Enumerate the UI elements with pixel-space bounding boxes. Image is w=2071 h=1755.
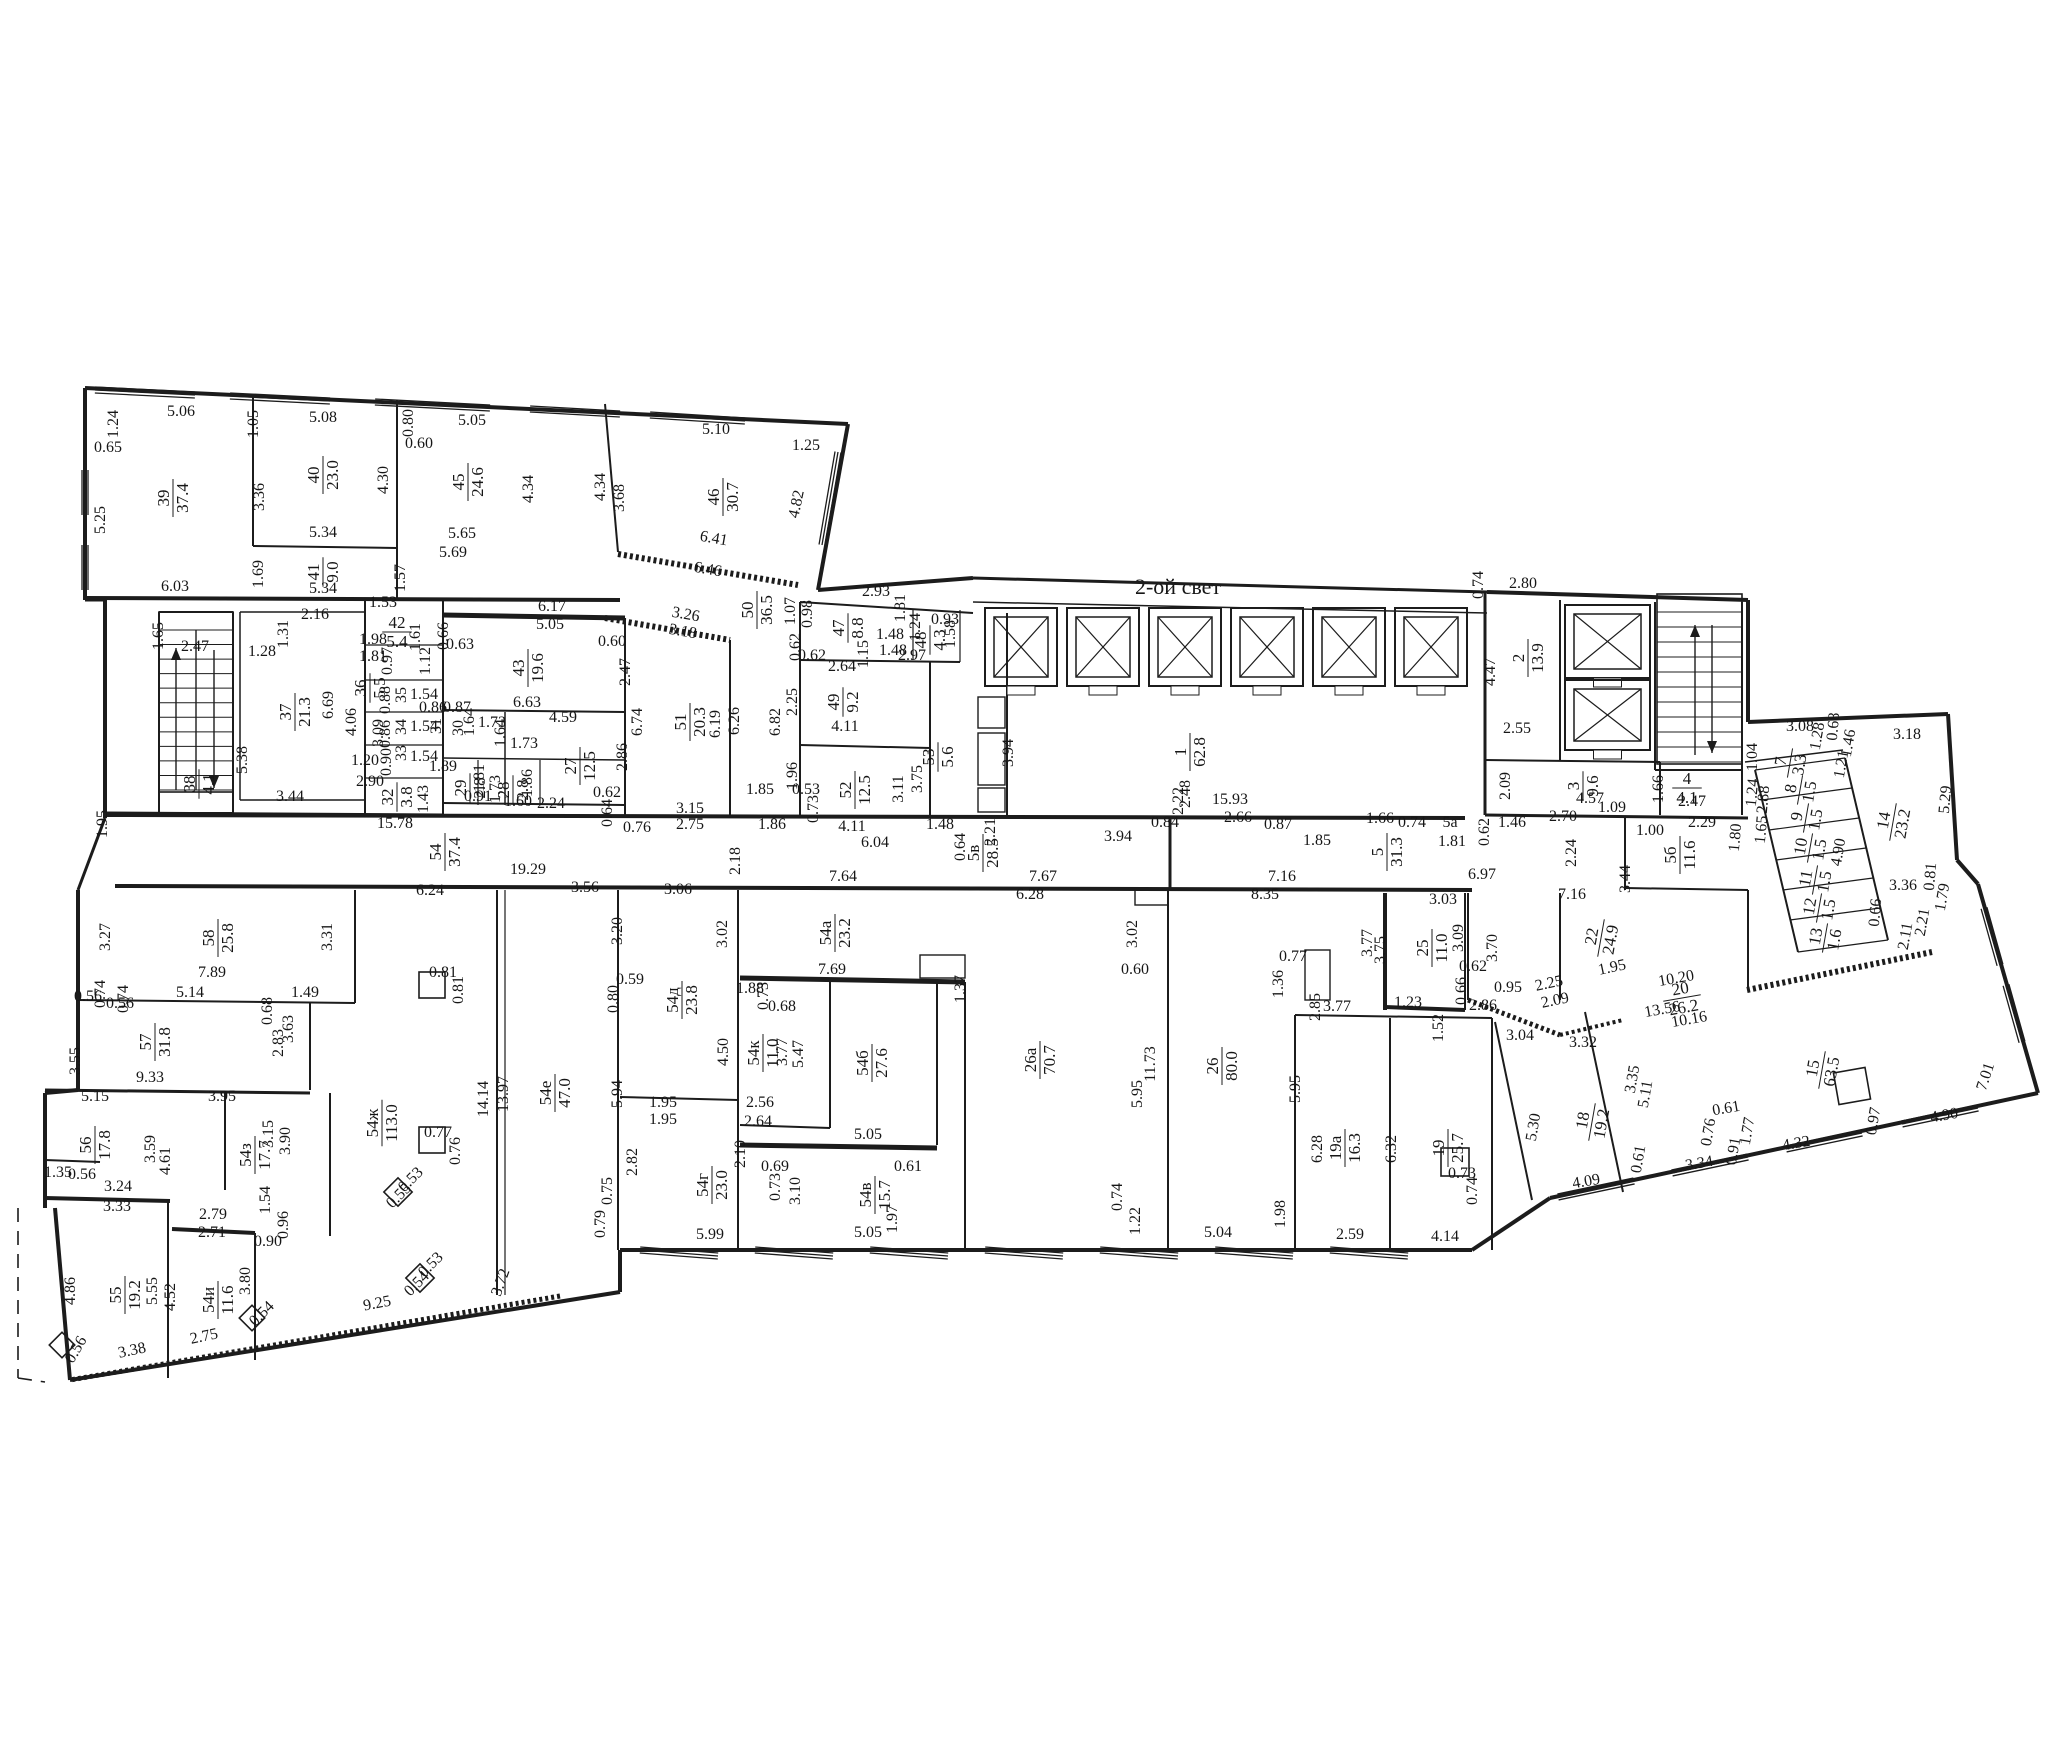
dim-text: 0.97 xyxy=(1863,1106,1885,1137)
dim-text: 3.32 xyxy=(1569,1034,1597,1051)
dashed-boundary-line xyxy=(18,1378,45,1382)
room-number: 19а xyxy=(1326,1135,1345,1160)
wall xyxy=(253,546,397,548)
dim-text: 4.59 xyxy=(549,709,577,726)
room-label-55: 5519.2 xyxy=(106,1276,144,1314)
room-number: 54б xyxy=(853,1050,872,1076)
dim-text: 9.25 xyxy=(362,1293,393,1315)
wall-niche xyxy=(978,697,1005,728)
room-number: 54е xyxy=(536,1081,555,1106)
dim-text: 2.75 xyxy=(189,1325,220,1347)
dim-text: 0.75 xyxy=(599,1177,616,1205)
dim-text: 4.14 xyxy=(1431,1228,1459,1245)
room-number: 8 xyxy=(1781,783,1801,795)
dim-text: 14.14 xyxy=(475,1081,492,1117)
dim-text: 0.88 xyxy=(377,686,394,714)
dim-text: 0.76 xyxy=(623,819,651,836)
room-label-14: 1423.2 xyxy=(1871,800,1915,844)
dim-text: 1.28 xyxy=(248,643,276,660)
dim-text: 31 xyxy=(428,718,445,734)
room-label-10: 101.5 xyxy=(1789,830,1832,866)
dim-text: 1.48 xyxy=(876,626,904,643)
dim-text: 2.85 xyxy=(1307,993,1324,1021)
room-area: 62.8 xyxy=(1190,737,1209,767)
dim-text: 5.55 xyxy=(144,1277,161,1305)
room-label-7: 73.3 xyxy=(1769,745,1812,781)
wall-niche xyxy=(1305,950,1330,1000)
room-area: 23.0 xyxy=(712,1170,731,1200)
dim-text: 7.01 xyxy=(1973,1061,1998,1093)
dim-text: 1.24 xyxy=(1743,778,1762,807)
room-number: 54 xyxy=(426,843,445,861)
room-number: 58 xyxy=(199,930,218,947)
dim-text: 5а xyxy=(1442,814,1457,831)
dim-text: 1.73 xyxy=(510,735,538,752)
dim-text: 3.10 xyxy=(787,1177,804,1205)
dim-text: 13.97 xyxy=(495,1076,512,1112)
dim-text: 5.25 xyxy=(92,506,109,534)
dim-text: 2.21 xyxy=(1912,907,1934,938)
room-label-52: 5212.5 xyxy=(836,771,874,809)
room-area: 19.6 xyxy=(528,653,547,683)
room-number: 39 xyxy=(154,490,173,507)
dim-text: 1.64 xyxy=(492,719,509,747)
room-number: 26а xyxy=(1021,1047,1040,1072)
dim-text: 1.49 xyxy=(291,984,319,1001)
room-label-2: 213.9 xyxy=(1509,639,1547,677)
room-number: 45 xyxy=(449,474,468,491)
dim-text: 4.11 xyxy=(838,818,865,835)
dim-text: 0.64 xyxy=(599,799,616,827)
room-number: 36 xyxy=(351,680,370,697)
room-area: 1.5 xyxy=(1798,780,1820,804)
room-number: 51 xyxy=(671,714,690,731)
dim-text: 0.56 xyxy=(106,995,134,1012)
room-label-19а: 19а16.3 xyxy=(1326,1129,1364,1167)
wall xyxy=(740,1145,937,1148)
room-number: 38 xyxy=(180,776,199,793)
dim-text: 1.86 xyxy=(519,769,536,797)
room-label-5б: 5б11.6 xyxy=(1661,836,1699,874)
dim-text: 1.65 xyxy=(150,622,167,650)
room-label-54б: 54б27.6 xyxy=(853,1044,891,1082)
room-area: 9.2 xyxy=(843,691,862,712)
dim-text: 3.31 xyxy=(319,923,336,951)
dim-text: 0.56 xyxy=(74,988,102,1005)
room-number: 5 xyxy=(1368,848,1387,857)
dim-text: 0.65 xyxy=(94,439,122,456)
dim-text: 2.83 xyxy=(270,1029,287,1057)
dim-text: 3.15 xyxy=(260,1120,277,1148)
dim-text: 1.95 xyxy=(1597,956,1628,978)
dim-text: 6.26 xyxy=(726,707,743,735)
dim-text: 1.15 xyxy=(855,640,872,668)
room-area: 19.2 xyxy=(125,1280,144,1310)
dim-text: 2.11 xyxy=(1895,921,1917,951)
room-area: 4.1 xyxy=(199,773,218,794)
dim-text: 0.80 xyxy=(605,985,622,1013)
room-number: 43 xyxy=(509,660,528,677)
room-number: 54з xyxy=(236,1143,255,1167)
dim-text: 0.74 xyxy=(1464,1177,1481,1205)
dim-text: 3.77 xyxy=(774,1038,791,1066)
dim-text: 5.94 xyxy=(609,1080,626,1108)
room-number: 42 xyxy=(389,613,406,632)
dim-text: 2.97 xyxy=(898,647,926,664)
dim-text: 0.62 xyxy=(1476,818,1493,846)
dim-text: 1.52 xyxy=(1430,1014,1447,1042)
dim-text: 0.74 xyxy=(1109,1183,1126,1211)
dim-text: 3.94 xyxy=(1000,739,1017,767)
dim-text: 2.90 xyxy=(356,773,384,790)
dim-text: 3.56 xyxy=(571,879,599,896)
elevator-door xyxy=(1007,686,1035,695)
wall xyxy=(1495,1022,1532,1200)
room-area: 1.5 xyxy=(1813,870,1835,894)
dim-text: 1.73 xyxy=(487,775,504,803)
dim-text: 4.52 xyxy=(162,1283,179,1311)
room-label-37: 3721.3 xyxy=(276,693,314,731)
room-label-25: 2511.0 xyxy=(1413,929,1451,967)
dim-text: 4.61 xyxy=(157,1147,174,1175)
dim-text: 1.23 xyxy=(1394,994,1422,1011)
floor-plan-page: 2-ой свет 3937.44023.0419.04524.64630.73… xyxy=(0,0,2071,1755)
dim-text: 0.87 xyxy=(1264,816,1292,833)
dim-text: 5.06 xyxy=(167,403,195,420)
dim-text: 2.47 xyxy=(617,658,634,686)
room-area: 31.8 xyxy=(155,1027,174,1057)
dim-text: 3.34 xyxy=(1684,1153,1715,1175)
elevator-door xyxy=(1594,750,1622,759)
room-number: 41 xyxy=(304,564,323,581)
dim-text: 0.62 xyxy=(798,647,826,664)
room-label-50: 5036.5 xyxy=(738,591,776,629)
wall xyxy=(45,1160,100,1162)
room-label-15: 1563.5 xyxy=(1800,1048,1844,1092)
dim-text: 2.86 xyxy=(1469,997,1497,1014)
dim-text: 5.29 xyxy=(1936,785,1955,814)
dim-text: 5.99 xyxy=(696,1226,724,1243)
dim-text: 6.17 xyxy=(538,598,566,615)
dim-text: 1.85 xyxy=(1303,832,1331,849)
room-label-26: 2680.0 xyxy=(1203,1047,1241,1085)
dim-text: 4.90 xyxy=(1929,1105,1960,1127)
room-number: 57 xyxy=(136,1033,155,1051)
dim-text: 7.16 xyxy=(1268,868,1296,885)
room-number: 54а xyxy=(816,920,835,945)
room-number: 54ж xyxy=(363,1108,382,1137)
staircase xyxy=(1657,594,1742,764)
dim-text: 0.62 xyxy=(593,784,621,801)
room-number: 3 xyxy=(1564,782,1583,791)
dim-text: 1.66 xyxy=(1366,810,1394,827)
room-label-5: 531.3 xyxy=(1368,833,1406,871)
hatched-wall xyxy=(1560,1020,1623,1035)
room-number: 55 xyxy=(106,1287,125,1304)
dim-text: 3.77 xyxy=(1323,998,1351,1015)
dim-text: 2.16 xyxy=(301,606,329,623)
dim-text: 3.33 xyxy=(103,1198,131,1215)
dim-text: 6.46 xyxy=(693,559,724,581)
dim-text: 1.95 xyxy=(649,1094,677,1111)
room-area: 23.0 xyxy=(323,460,342,490)
stair-arrow-head-icon xyxy=(171,648,181,660)
dim-text: 6.82 xyxy=(767,708,784,736)
dim-text: 1.24 xyxy=(105,410,122,438)
dim-text: 1.77 xyxy=(1737,1116,1759,1147)
room-area: 12.5 xyxy=(855,775,874,805)
dim-text: 2.64 xyxy=(828,658,856,675)
room-number: 54г xyxy=(693,1173,712,1197)
dim-text: 3.77 xyxy=(1359,929,1376,957)
dim-text: 0.68 xyxy=(768,998,796,1015)
room-area: 1.5 xyxy=(1808,838,1830,862)
dim-text: 1.20 xyxy=(351,752,379,769)
dim-text: 0.95 xyxy=(1494,979,1522,996)
dim-text: 4.86 xyxy=(62,1277,79,1305)
dim-text: 3.09 xyxy=(1450,924,1467,952)
dim-text: 9.33 xyxy=(136,1069,164,1086)
dim-text: 1.48 xyxy=(926,816,954,833)
dim-text: 1.24 xyxy=(907,613,924,641)
window-sill xyxy=(985,1253,1063,1259)
room-area: 113.0 xyxy=(382,1104,401,1142)
room-area: 3.3 xyxy=(1788,753,1810,777)
dim-text: 2.25 xyxy=(784,688,801,716)
room-area: 3.8 xyxy=(397,786,416,807)
dim-text: 8.35 xyxy=(1251,886,1279,903)
dim-text: 0.74 xyxy=(1470,571,1487,599)
window-sill xyxy=(870,1253,948,1259)
room-area: 11.6 xyxy=(218,1285,237,1314)
dim-text: 1.95 xyxy=(649,1111,677,1128)
window-sill xyxy=(755,1253,833,1259)
dim-text: 6.41 xyxy=(699,528,730,550)
dim-text: 3.18 xyxy=(1893,726,1921,743)
dim-text: 3.90 xyxy=(277,1127,294,1155)
elevator-door xyxy=(1171,686,1199,695)
wall xyxy=(800,745,930,748)
dim-text: 3.94 xyxy=(1104,828,1132,845)
dim-text: 0.84 xyxy=(1151,814,1179,831)
dim-text: 5.47 xyxy=(790,1040,807,1068)
dim-text: 3.06 xyxy=(664,881,692,898)
dim-text: 5.38 xyxy=(234,746,251,774)
dim-text: 3.02 xyxy=(1124,920,1141,948)
room-number: 47 xyxy=(829,619,848,637)
dim-text: 0.76 xyxy=(1698,1117,1720,1148)
dim-text: 3.55 xyxy=(67,1047,84,1075)
dim-text: 0.77 xyxy=(1279,948,1307,965)
wall xyxy=(818,424,848,590)
dim-text: 2.09 xyxy=(1497,772,1514,800)
dim-text: 1.12 xyxy=(417,647,434,675)
dim-text: 0.68 xyxy=(259,997,276,1025)
dim-text: 4.57 xyxy=(1576,790,1604,807)
room-area: 1.5 xyxy=(1817,898,1839,922)
room-label-22: 2224.9 xyxy=(1579,916,1623,960)
dim-text: 15.78 xyxy=(377,815,413,832)
room-number: 37 xyxy=(276,703,295,721)
dim-text: 1.25 xyxy=(792,437,820,454)
room-label-58: 5825.8 xyxy=(199,919,237,957)
dim-text: 0.66 xyxy=(1453,977,1470,1005)
dim-text: 0.73 xyxy=(805,795,822,823)
dim-text: 5.95 xyxy=(1129,1080,1146,1108)
dim-text: 3.95 xyxy=(208,1088,236,1105)
dim-text: 0.69 xyxy=(761,1158,789,1175)
room-number: 27 xyxy=(561,757,580,775)
dim-text: 6.32 xyxy=(1383,1135,1400,1163)
dim-text: 4.11 xyxy=(831,718,858,735)
dim-text: 0.60 xyxy=(405,435,433,452)
wall xyxy=(1472,1198,1550,1250)
room-area: 19.2 xyxy=(1589,1107,1613,1140)
dim-text: 1.80 xyxy=(1726,823,1745,852)
dim-text: 6.63 xyxy=(513,694,541,711)
dim-text: 1.61 xyxy=(407,623,424,651)
room-label-19: 1925.7 xyxy=(1429,1129,1467,1167)
dim-text: 2.24 xyxy=(1563,839,1580,867)
dim-text: 34 xyxy=(393,719,410,735)
dim-text: 2.75 xyxy=(676,816,704,833)
wall xyxy=(1748,714,1948,722)
room-area: 1.5 xyxy=(1804,808,1826,832)
dim-text: 6.97 xyxy=(1468,866,1496,883)
dim-text: 4.06 xyxy=(343,708,360,736)
room-label-39: 3937.4 xyxy=(154,479,192,517)
dim-text: 3.18 xyxy=(668,621,699,643)
room-area: 5.6 xyxy=(938,746,957,767)
dim-text: 2.56 xyxy=(746,1094,774,1111)
wall-niche xyxy=(1135,890,1168,905)
dim-text: 3.24 xyxy=(104,1178,132,1195)
room-number: 54к xyxy=(744,1040,763,1066)
dim-text: 7.69 xyxy=(818,961,846,978)
dim-text: 1.53 xyxy=(369,594,397,611)
room-number: 46 xyxy=(704,489,723,506)
dim-text: 1.89 xyxy=(429,758,457,775)
dim-text: 2.71 xyxy=(198,1224,226,1241)
room-number: 1 xyxy=(1171,748,1190,757)
hatched-wall xyxy=(1747,952,1932,990)
dim-text: 35 xyxy=(393,687,410,703)
room-label-54ж: 54ж113.0 xyxy=(363,1100,401,1147)
dim-text: 1.81 xyxy=(359,648,387,665)
wall xyxy=(620,1097,738,1100)
dim-text: 0.66 xyxy=(1866,898,1885,927)
room-area: 23.2 xyxy=(1890,807,1914,840)
dim-text: 5.34 xyxy=(309,524,337,541)
room-area: 30.7 xyxy=(723,482,742,512)
dim-text: 2.86 xyxy=(614,743,631,771)
dim-text: 6.04 xyxy=(861,834,889,851)
dim-text: 1.31 xyxy=(275,620,292,648)
dim-text: 0.74 xyxy=(1398,814,1426,831)
room-area: 23.2 xyxy=(835,918,854,948)
dim-text: 0.62 xyxy=(1459,958,1487,975)
room-number: 50 xyxy=(738,602,757,619)
room-number: 9 xyxy=(1787,811,1807,823)
window-sill xyxy=(1100,1253,1178,1259)
dim-text: 0.54 xyxy=(246,1298,278,1330)
dim-text: 2.47 xyxy=(181,638,209,655)
room-area: 25.7 xyxy=(1448,1133,1467,1163)
dim-text: 4.82 xyxy=(785,489,807,520)
room-label-47: 478.8 xyxy=(829,613,867,643)
room-label-49: 499.2 xyxy=(824,687,862,717)
elevator-door xyxy=(1417,686,1445,695)
dim-text: 4.32 xyxy=(1781,1133,1812,1155)
dim-text: 1.54 xyxy=(257,1186,274,1214)
elevator-door xyxy=(1089,686,1117,695)
room-number: 25 xyxy=(1413,940,1432,957)
wall xyxy=(1485,760,1660,762)
dim-text: 4.90 xyxy=(1828,837,1850,868)
room-label-11: 111.5 xyxy=(1794,862,1837,898)
dim-text: 7.64 xyxy=(829,868,857,885)
dim-text: 0.81 xyxy=(450,976,467,1004)
room-number: 40 xyxy=(304,467,323,484)
dim-text: 5.15 xyxy=(81,1088,109,1105)
room-number: 49 xyxy=(824,694,843,711)
dim-text: 0.64 xyxy=(952,833,969,861)
wall xyxy=(1295,1015,1492,1018)
dim-text: 2.10 xyxy=(732,1140,749,1168)
dim-text: 2.82 xyxy=(624,1148,641,1176)
dim-text: 0.98 xyxy=(799,600,816,628)
room-number: 5б xyxy=(1661,846,1680,863)
wall xyxy=(1625,888,1748,890)
dim-text: 0.79 xyxy=(592,1210,609,1238)
dim-text: 2.64 xyxy=(744,1113,772,1130)
dim-text: 1.69 xyxy=(250,560,267,588)
dim-text: 5.05 xyxy=(854,1126,882,1143)
dim-text: 2.59 xyxy=(1336,1226,1364,1243)
dim-text: 1.79 xyxy=(1932,882,1954,913)
room-number: 2 xyxy=(1509,654,1528,663)
room-area: 23.8 xyxy=(682,985,701,1015)
dim-text: 0.61 xyxy=(1711,1098,1742,1120)
dim-text: 5.08 xyxy=(309,409,337,426)
dim-text: 5.65 xyxy=(448,525,476,542)
room-area: 1.6 xyxy=(1823,928,1845,952)
room-label-54е: 54е47.0 xyxy=(536,1074,574,1112)
dim-text: 0.56 xyxy=(68,1166,96,1183)
room-area: 24.6 xyxy=(468,467,487,497)
dim-text: 5.05 xyxy=(536,616,564,633)
dim-text: 5.10 xyxy=(702,421,730,438)
dim-text: 10.20 xyxy=(1657,967,1695,990)
room-number: 26 xyxy=(1203,1058,1222,1075)
room-area: 31.3 xyxy=(1387,837,1406,867)
dim-text: 1.00 xyxy=(1636,822,1664,839)
room-area: 25.8 xyxy=(218,923,237,953)
room-label-38: 384.1 xyxy=(180,769,218,799)
elevator-door xyxy=(1253,686,1281,695)
dim-text: 1.66 xyxy=(1650,775,1667,803)
dim-text: 5.69 xyxy=(439,544,467,561)
room-number: 32 xyxy=(378,789,397,806)
dim-text: 2.21 xyxy=(982,818,999,846)
room-label-27: 2712.5 xyxy=(561,747,599,785)
room-area: 12.5 xyxy=(580,751,599,781)
room-area: 11.0 xyxy=(1432,933,1451,962)
dim-text: 1.98 xyxy=(1272,1200,1289,1228)
dim-text: 33 xyxy=(393,745,410,761)
dim-text: 6.19 xyxy=(707,710,724,738)
dim-text: 3.36 xyxy=(1889,877,1917,894)
